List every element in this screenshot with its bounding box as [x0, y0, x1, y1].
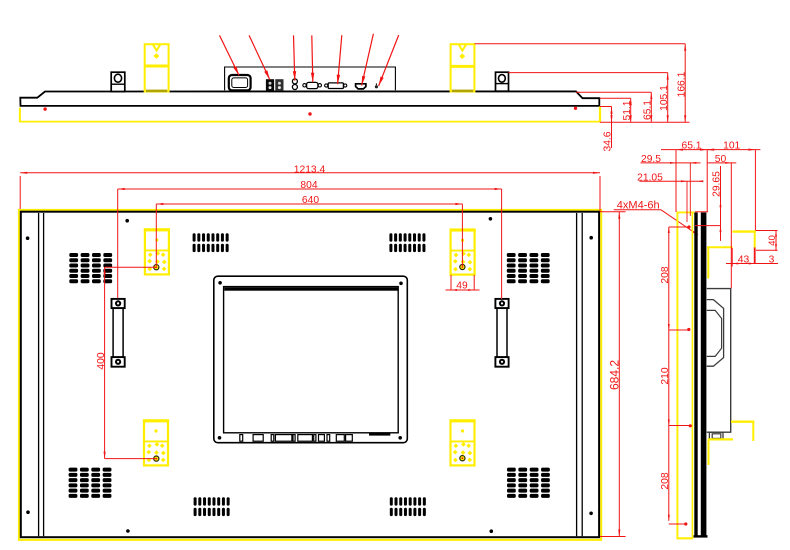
- svg-text:29.65: 29.65: [712, 171, 723, 197]
- svg-text:34.6: 34.6: [603, 131, 614, 151]
- svg-text:50: 50: [715, 154, 727, 165]
- svg-text:400: 400: [96, 352, 107, 369]
- svg-text:105.1: 105.1: [659, 85, 670, 111]
- svg-text:40: 40: [767, 235, 778, 246]
- svg-text:684.2: 684.2: [608, 360, 622, 390]
- svg-text:29.5: 29.5: [641, 154, 661, 165]
- svg-text:640: 640: [302, 195, 319, 206]
- svg-text:3: 3: [769, 255, 775, 266]
- svg-text:51.1: 51.1: [622, 100, 633, 120]
- svg-text:210: 210: [660, 367, 671, 384]
- svg-text:1213.4: 1213.4: [294, 164, 326, 175]
- svg-text:43: 43: [738, 255, 750, 266]
- svg-text:65.1: 65.1: [681, 141, 701, 152]
- svg-text:166.1: 166.1: [676, 71, 687, 97]
- svg-text:49: 49: [456, 281, 468, 292]
- svg-text:208: 208: [660, 472, 671, 489]
- svg-text:208: 208: [660, 266, 671, 283]
- svg-text:101: 101: [723, 141, 740, 152]
- svg-text:21.05: 21.05: [637, 172, 663, 183]
- svg-text:65.1: 65.1: [642, 100, 653, 120]
- svg-text:804: 804: [300, 180, 317, 191]
